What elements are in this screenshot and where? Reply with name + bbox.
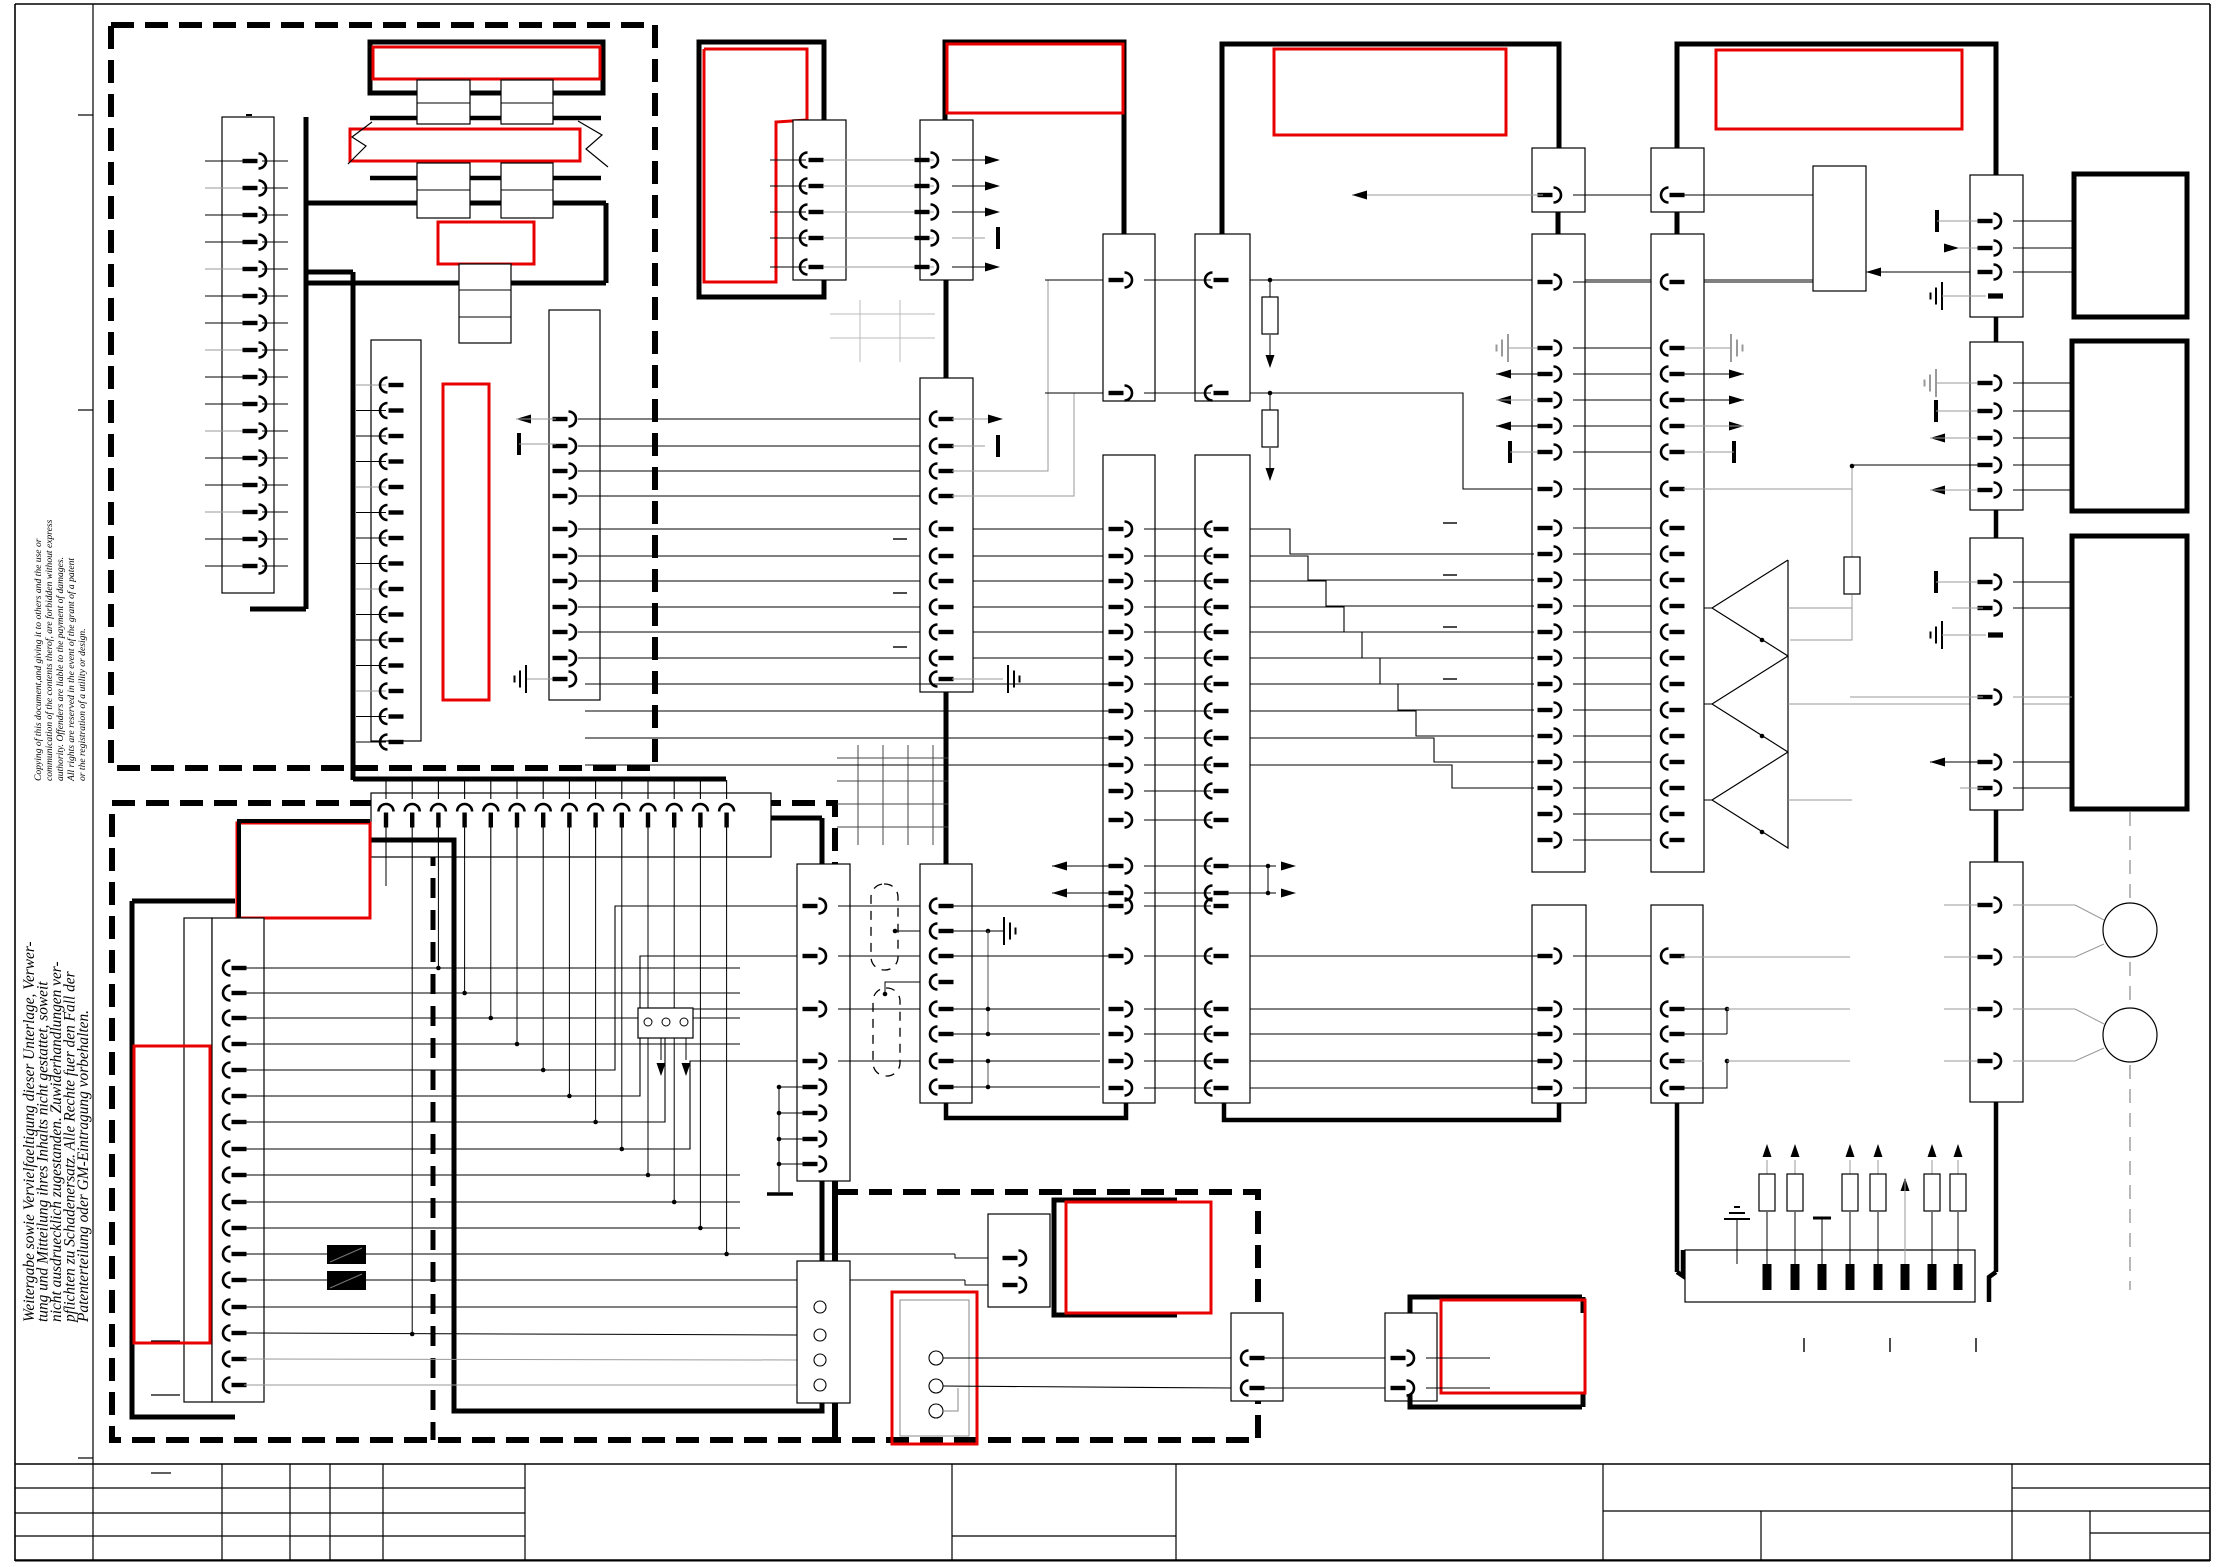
svg-text:Copying of this document,and g: Copying of this document,and giving it t… bbox=[33, 538, 44, 781]
svg-text:All rights are reserved in the: All rights are reserved in the event of … bbox=[66, 558, 77, 782]
svg-text:or the registration of a utili: or the registration of a utility or desi… bbox=[77, 628, 88, 781]
svg-text:communication of the contents: communication of the contents therof, ar… bbox=[44, 519, 55, 781]
svg-text:Patenterteilung oder GM-Eintra: Patenterteilung oder GM-Eintragung vorbe… bbox=[75, 1010, 92, 1323]
svg-text:authority. Offenders are liabl: authority. Offenders are liable to the p… bbox=[55, 557, 66, 781]
